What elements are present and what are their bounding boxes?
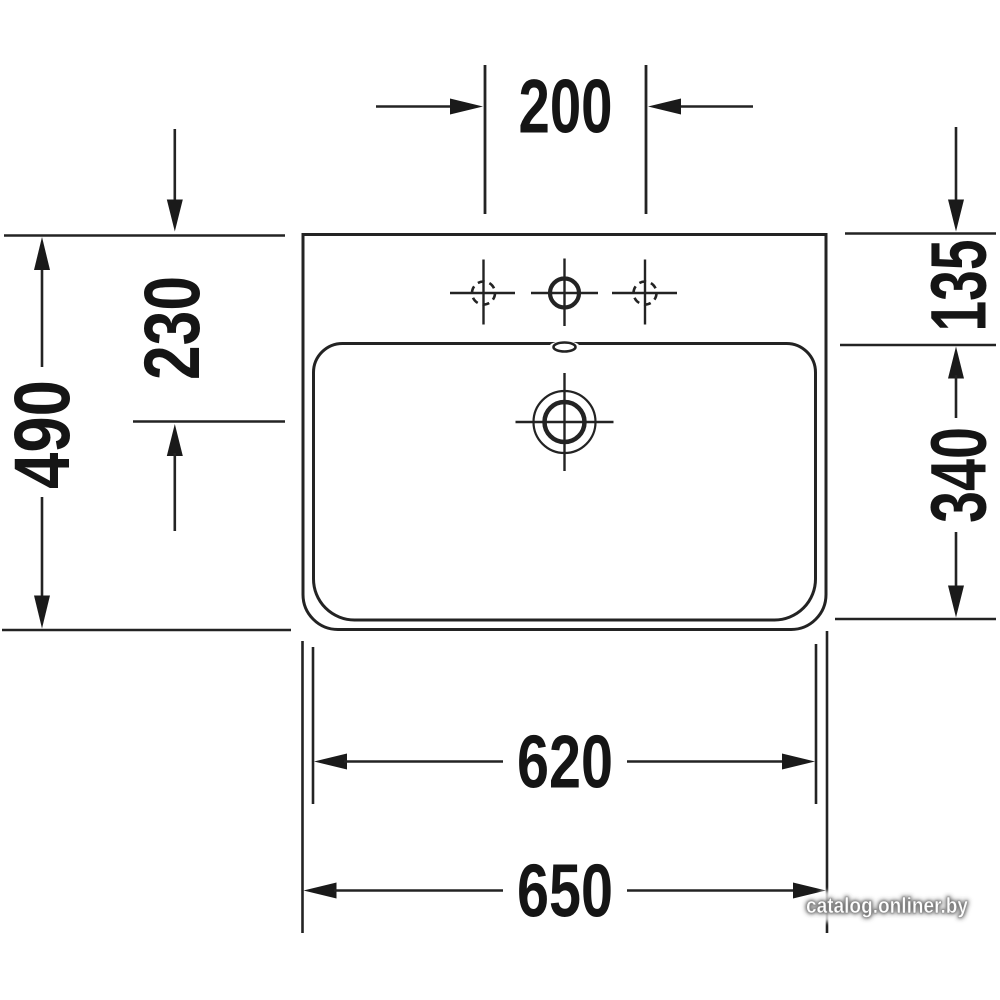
- svg-text:135: 135: [913, 240, 1000, 332]
- svg-text:620: 620: [517, 720, 613, 804]
- svg-text:200: 200: [519, 65, 613, 150]
- svg-text:340: 340: [913, 427, 1000, 523]
- svg-text:490: 490: [0, 380, 86, 489]
- svg-text:catalog.onliner.by: catalog.onliner.by: [806, 893, 969, 918]
- svg-text:650: 650: [517, 849, 613, 933]
- svg-text:230: 230: [127, 276, 216, 380]
